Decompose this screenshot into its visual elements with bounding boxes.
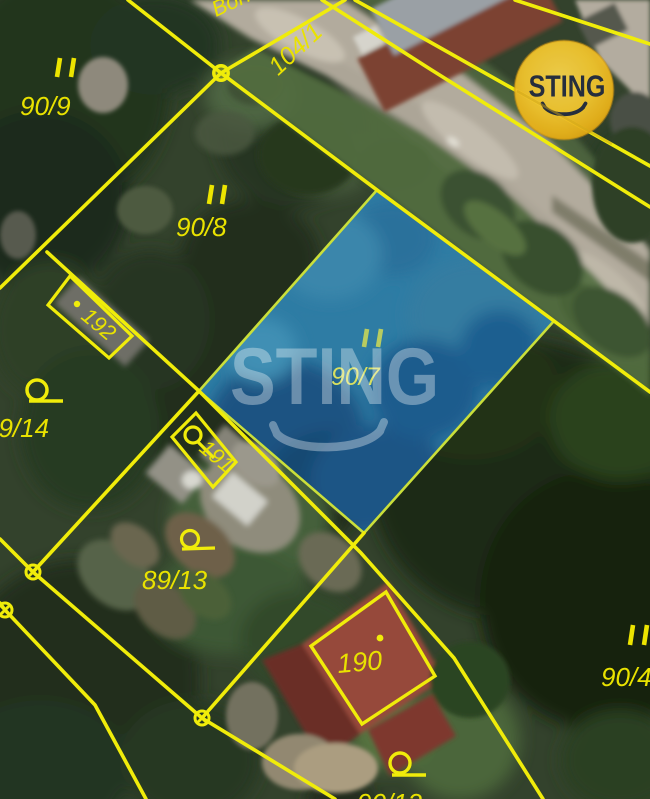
svg-text:90/9: 90/9 — [20, 91, 71, 121]
svg-text:STING: STING — [230, 331, 439, 422]
svg-text:STING: STING — [529, 68, 606, 103]
svg-text:89/14: 89/14 — [0, 413, 49, 443]
svg-text:90/12: 90/12 — [357, 788, 423, 799]
svg-text:90/4: 90/4 — [601, 662, 650, 692]
svg-text:89/13: 89/13 — [142, 565, 208, 595]
svg-text:190: 190 — [336, 645, 384, 679]
svg-text:90/8: 90/8 — [176, 212, 227, 242]
